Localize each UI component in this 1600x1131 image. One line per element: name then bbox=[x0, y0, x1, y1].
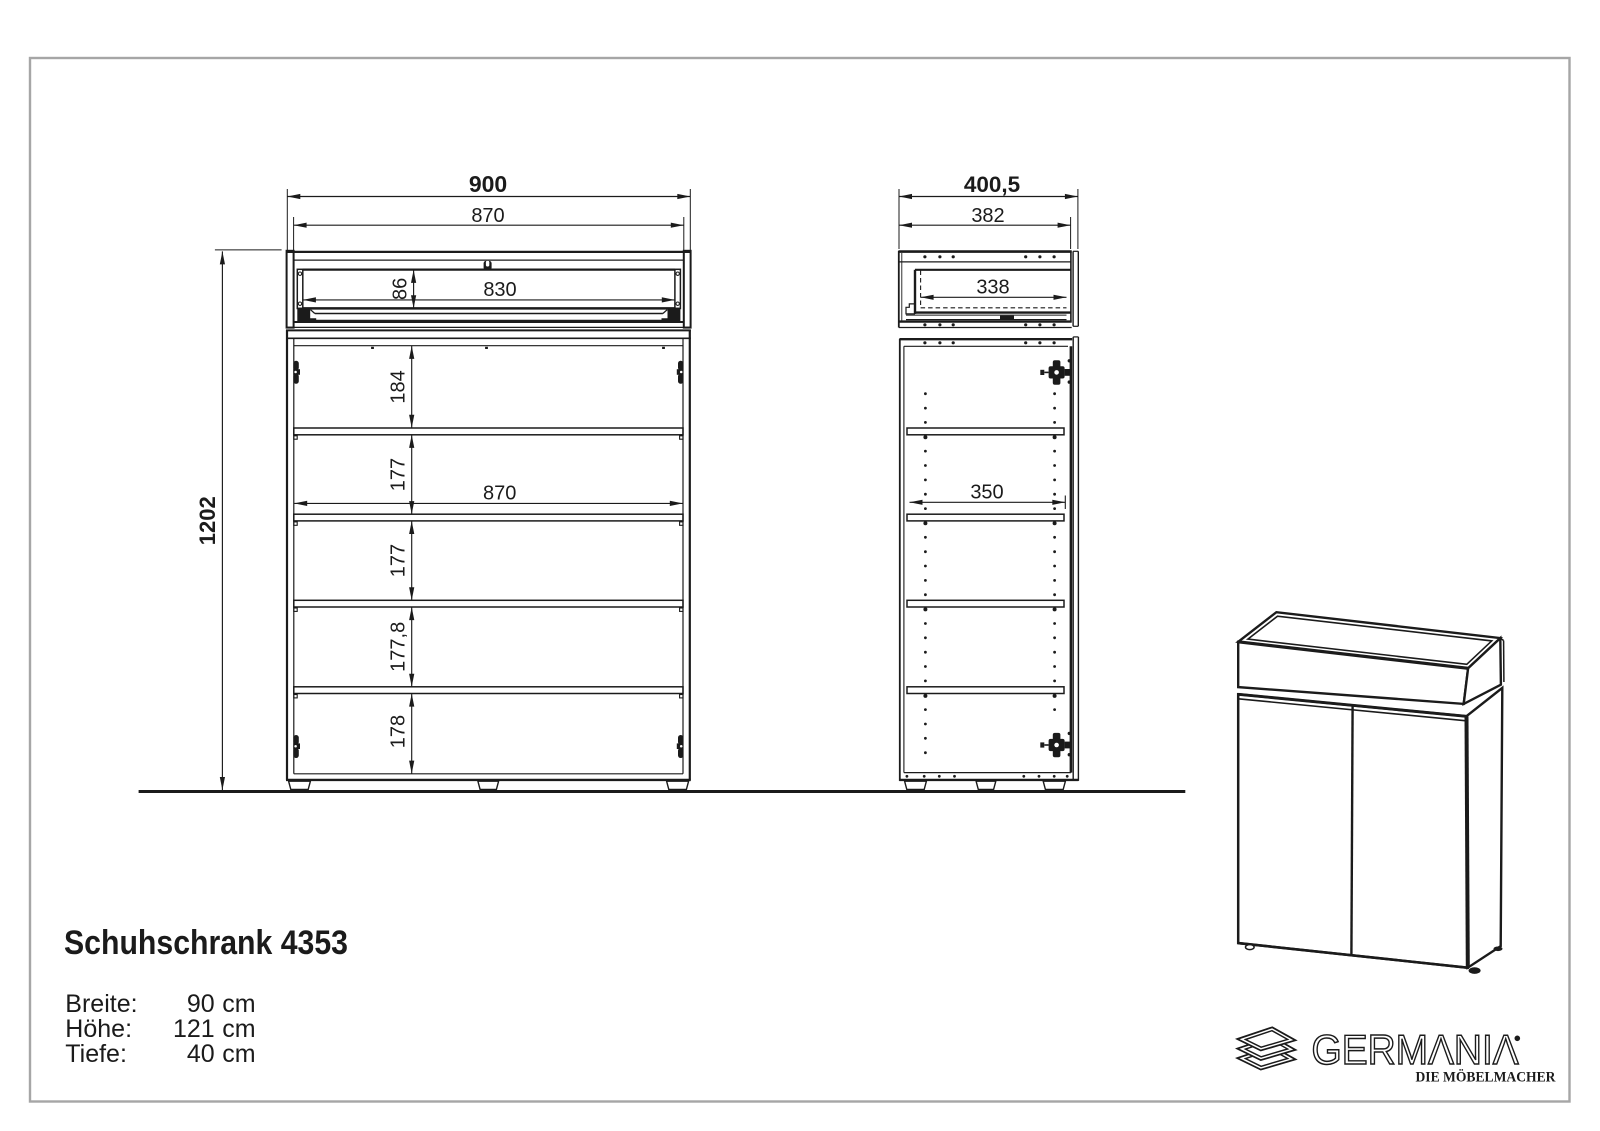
svg-text:184: 184 bbox=[387, 370, 409, 403]
svg-text:DIE MÖBELMACHER: DIE MÖBELMACHER bbox=[1416, 1069, 1556, 1086]
svg-text:400,5: 400,5 bbox=[964, 172, 1020, 197]
svg-text:GERMΛNIΛ: GERMΛNIΛ bbox=[1312, 1026, 1519, 1074]
svg-text:40: 40 bbox=[187, 1040, 215, 1068]
svg-text:830: 830 bbox=[483, 279, 516, 301]
svg-text:177,8: 177,8 bbox=[387, 622, 409, 672]
svg-text:121: 121 bbox=[173, 1015, 215, 1043]
svg-text:382: 382 bbox=[971, 205, 1004, 227]
svg-text:cm: cm bbox=[222, 1015, 255, 1043]
svg-text:870: 870 bbox=[483, 483, 516, 505]
svg-text:cm: cm bbox=[222, 1040, 255, 1068]
svg-text:350: 350 bbox=[970, 482, 1003, 504]
svg-text:90: 90 bbox=[187, 990, 215, 1018]
svg-text:Breite:: Breite: bbox=[65, 990, 137, 1018]
svg-text:870: 870 bbox=[471, 205, 504, 227]
svg-text:Höhe:: Höhe: bbox=[65, 1015, 132, 1043]
svg-text:177: 177 bbox=[387, 544, 409, 577]
svg-text:Tiefe:: Tiefe: bbox=[65, 1040, 127, 1068]
svg-text:cm: cm bbox=[222, 990, 255, 1018]
svg-text:Schuhschrank 4353: Schuhschrank 4353 bbox=[64, 924, 348, 962]
svg-text:338: 338 bbox=[976, 277, 1009, 299]
svg-text:900: 900 bbox=[469, 171, 507, 197]
svg-text:177: 177 bbox=[387, 458, 409, 491]
svg-text:1202: 1202 bbox=[195, 496, 220, 545]
svg-text:86: 86 bbox=[389, 278, 411, 300]
svg-text:178: 178 bbox=[387, 715, 409, 748]
